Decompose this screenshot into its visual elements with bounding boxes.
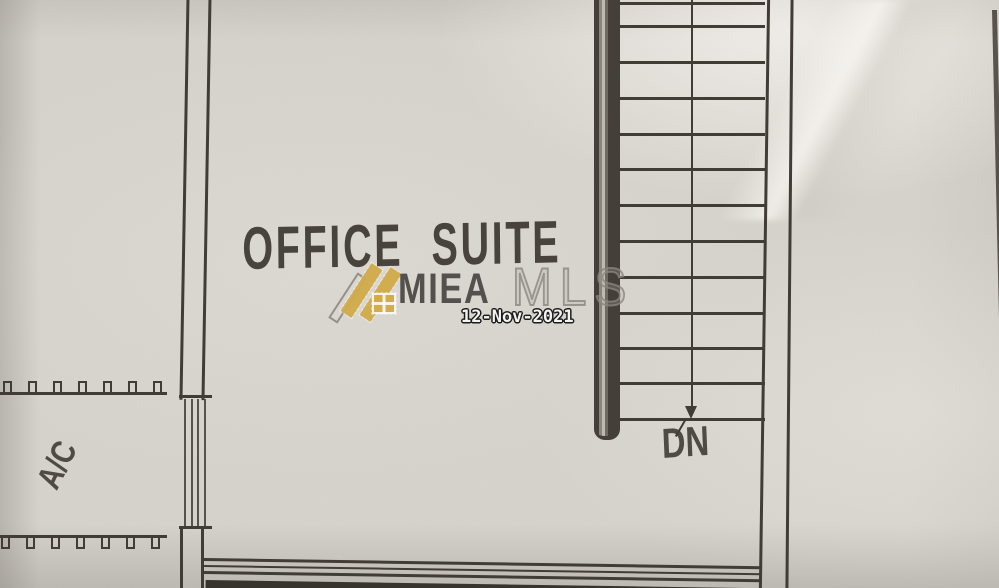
watermark-date: 12-Nov-2021: [461, 309, 574, 326]
floorplan-scan: OFFICE SUITE DN A/C MIEA MLS 12-Nov-2021: [0, 0, 999, 588]
mls-logo-window-icon: [372, 293, 396, 314]
watermark-brand-primary: MIEA: [398, 268, 490, 311]
mls-watermark: MIEA MLS 12-Nov-2021: [0, 0, 999, 588]
